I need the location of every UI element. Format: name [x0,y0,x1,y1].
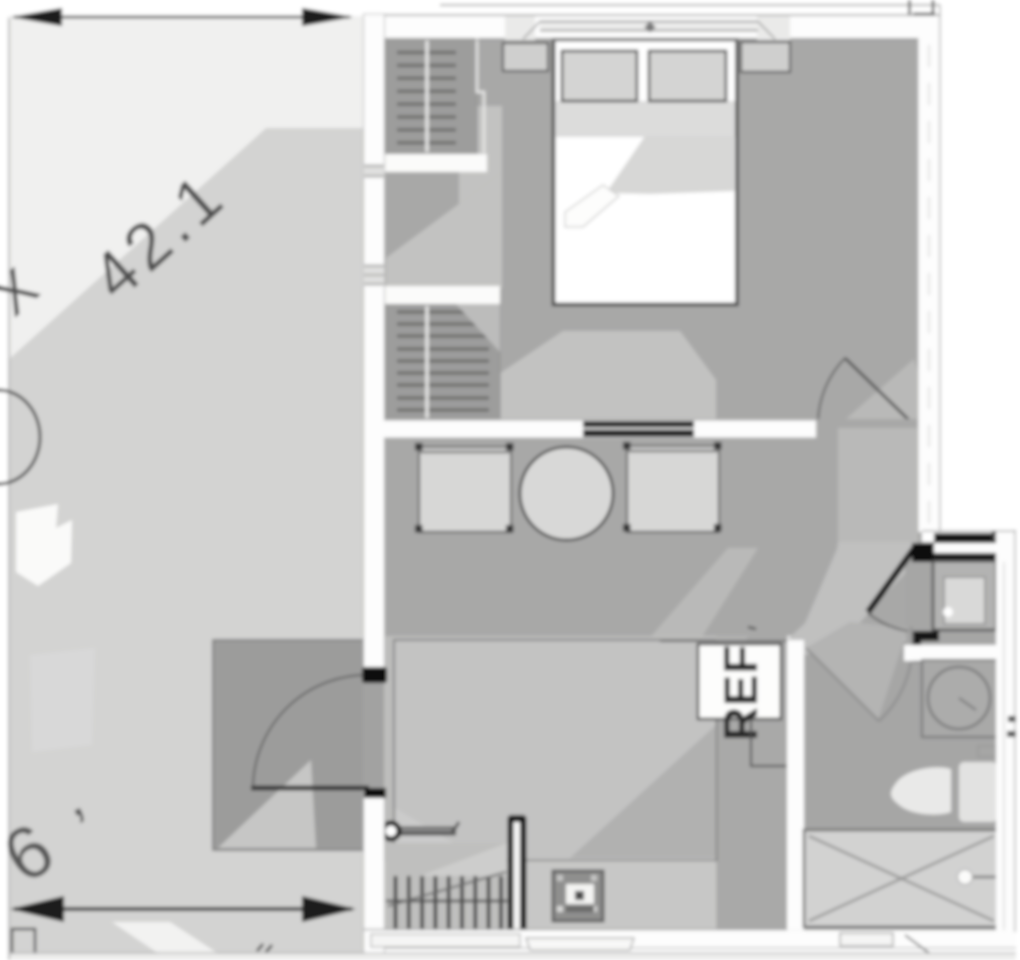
svg-text:REF: REF [714,645,767,741]
